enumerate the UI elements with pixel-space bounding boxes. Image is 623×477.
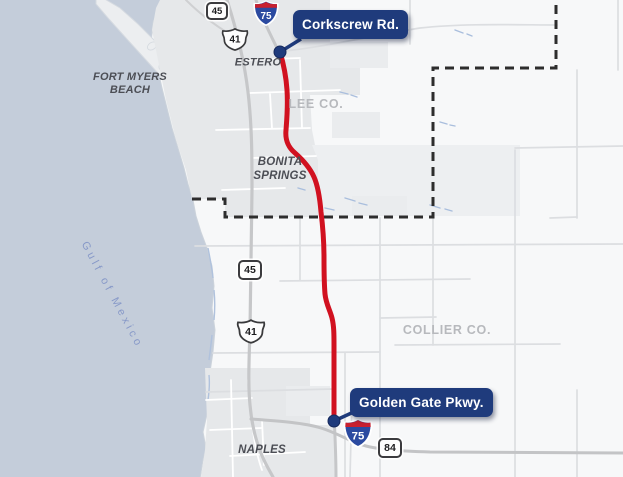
- city-label-line: SPRINGS: [253, 170, 306, 184]
- shield-number: 75: [352, 431, 365, 443]
- shield-us41-mid: 41: [236, 318, 266, 345]
- callout-corkscrew-rd: Corkscrew Rd.: [293, 10, 408, 39]
- shield-number: 41: [230, 35, 241, 46]
- city-label-line: FORT MYERS: [93, 71, 167, 84]
- city-label-naples: NAPLES: [238, 444, 286, 458]
- shield-sr84: 84: [378, 438, 402, 458]
- shield-number: 41: [245, 326, 257, 338]
- city-label-line: BEACH: [93, 84, 167, 97]
- county-label-collier: COLLIER CO.: [403, 323, 491, 337]
- city-label-fort-myers-beach: FORT MYERS BEACH: [93, 71, 167, 97]
- shield-i75-south: 75: [343, 418, 374, 449]
- route-endpoint-dot-south: [328, 415, 340, 427]
- project-map-canvas: FORT MYERS BEACH ESTERO BONITA SPRINGS N…: [0, 0, 623, 477]
- city-label-bonita-springs: BONITA SPRINGS: [253, 156, 306, 184]
- shield-number: 75: [261, 11, 272, 22]
- interstate-shield-band: [345, 420, 370, 427]
- interstate-shield-band: [255, 2, 277, 8]
- shield-us41-north: 41: [221, 27, 249, 52]
- shield-sr45-mid: 45: [238, 260, 262, 280]
- city-label-estero: ESTERO: [235, 56, 281, 69]
- city-label-line: BONITA: [253, 156, 306, 170]
- shield-sr45-north: 45: [206, 2, 228, 20]
- county-label-lee: LEE CO.: [289, 97, 344, 111]
- callout-golden-gate-pkwy: Golden Gate Pkwy.: [350, 388, 493, 417]
- shield-i75-north: 75: [253, 0, 280, 27]
